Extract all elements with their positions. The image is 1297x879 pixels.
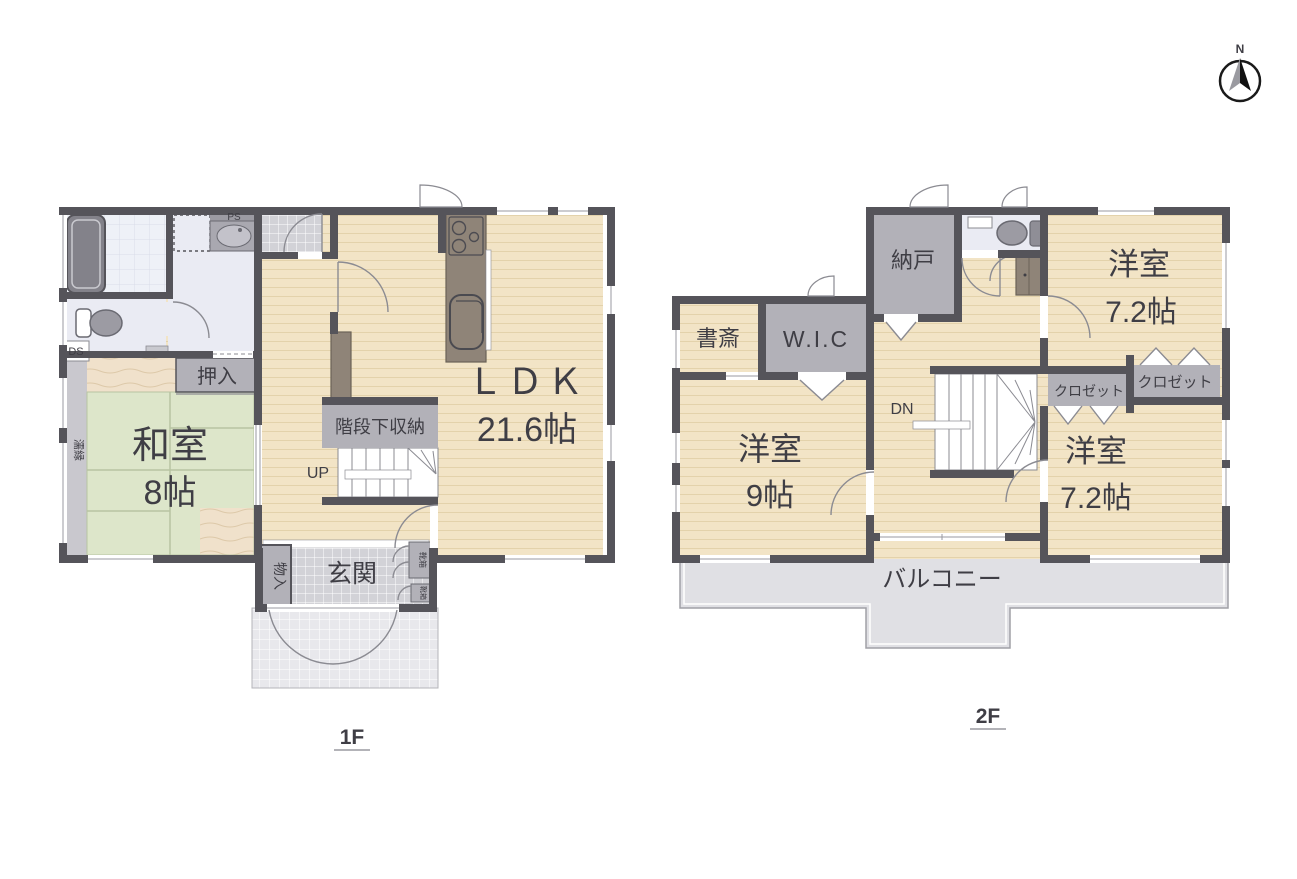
washitsu-wood-strip <box>87 358 176 392</box>
ldk-cabinet <box>331 332 351 400</box>
washitsu-label: 和室 <box>132 425 208 467</box>
shosai-label: 書斎 <box>696 326 740 351</box>
room72b-size-label: 7.2帖 <box>1060 482 1132 515</box>
balcony-label: バルコニー <box>882 566 1002 593</box>
washitsu-size-label: 8帖 <box>144 474 197 512</box>
closet-a-label: クロゼット <box>1137 374 1212 391</box>
oshiire-label: 押入 <box>197 365 237 388</box>
ps-label: PS <box>227 212 241 223</box>
room72b-label: 洋室 <box>1065 434 1127 469</box>
genkan-label: 玄関 <box>327 560 377 588</box>
room72a-label: 洋室 <box>1108 247 1170 282</box>
room9-label: 洋室 <box>738 431 802 467</box>
stair-storage-label: 階段下収納 <box>335 417 425 437</box>
service-tile <box>262 211 322 252</box>
porch-tile <box>252 608 438 688</box>
floor2-title: 2F <box>970 705 1006 729</box>
floor2-plan: 納戸 書斎 W.I.C 洋室 9帖 洋室 7.2帖 洋室 7.2帖 クロゼット … <box>672 185 1230 729</box>
ldk-label: ＬＤＫ <box>467 361 587 402</box>
dn-label: DN <box>890 401 913 418</box>
nando-label: 納戸 <box>891 248 935 273</box>
floor1-title: 1F <box>334 726 370 750</box>
room72a-size-label: 7.2帖 <box>1105 296 1177 329</box>
compass-north-label: N <box>1236 42 1245 56</box>
compass: N <box>1220 42 1260 101</box>
room9-size-label: 9帖 <box>746 478 794 513</box>
floorplan-page: ＬＤＫ 21.6帖 和室 8帖 玄関 押入 階段下収納 UP 物入 濡縁 PS … <box>0 0 1297 879</box>
washitsu-wood-corner <box>200 508 254 555</box>
floorplan-drawing: ＬＤＫ 21.6帖 和室 8帖 玄関 押入 階段下収納 UP 物入 濡縁 PS … <box>0 0 1297 879</box>
shoe-box-upper-label: 靴箱 <box>418 552 428 568</box>
shoe-box-lower-label: 靴箱 <box>419 586 428 600</box>
closet-b-label: クロゼット <box>1054 383 1124 399</box>
up-label: UP <box>307 465 329 482</box>
ds-label: DS <box>68 346 83 358</box>
ldk-size-label: 21.6帖 <box>477 411 577 449</box>
nureen-label: 濡縁 <box>72 439 86 461</box>
washbasin-icon <box>210 221 258 251</box>
monoire-label: 物入 <box>272 562 288 590</box>
floor1-title-label: 1F <box>340 726 365 749</box>
kitchen-counter <box>446 213 491 362</box>
wic-label: W.I.C <box>783 326 849 352</box>
stairs-up <box>338 448 438 497</box>
bathtub-icon <box>67 215 105 293</box>
floor1-plan: ＬＤＫ 21.6帖 和室 8帖 玄関 押入 階段下収納 UP 物入 濡縁 PS … <box>59 185 615 750</box>
floor2-title-label: 2F <box>976 705 1001 728</box>
